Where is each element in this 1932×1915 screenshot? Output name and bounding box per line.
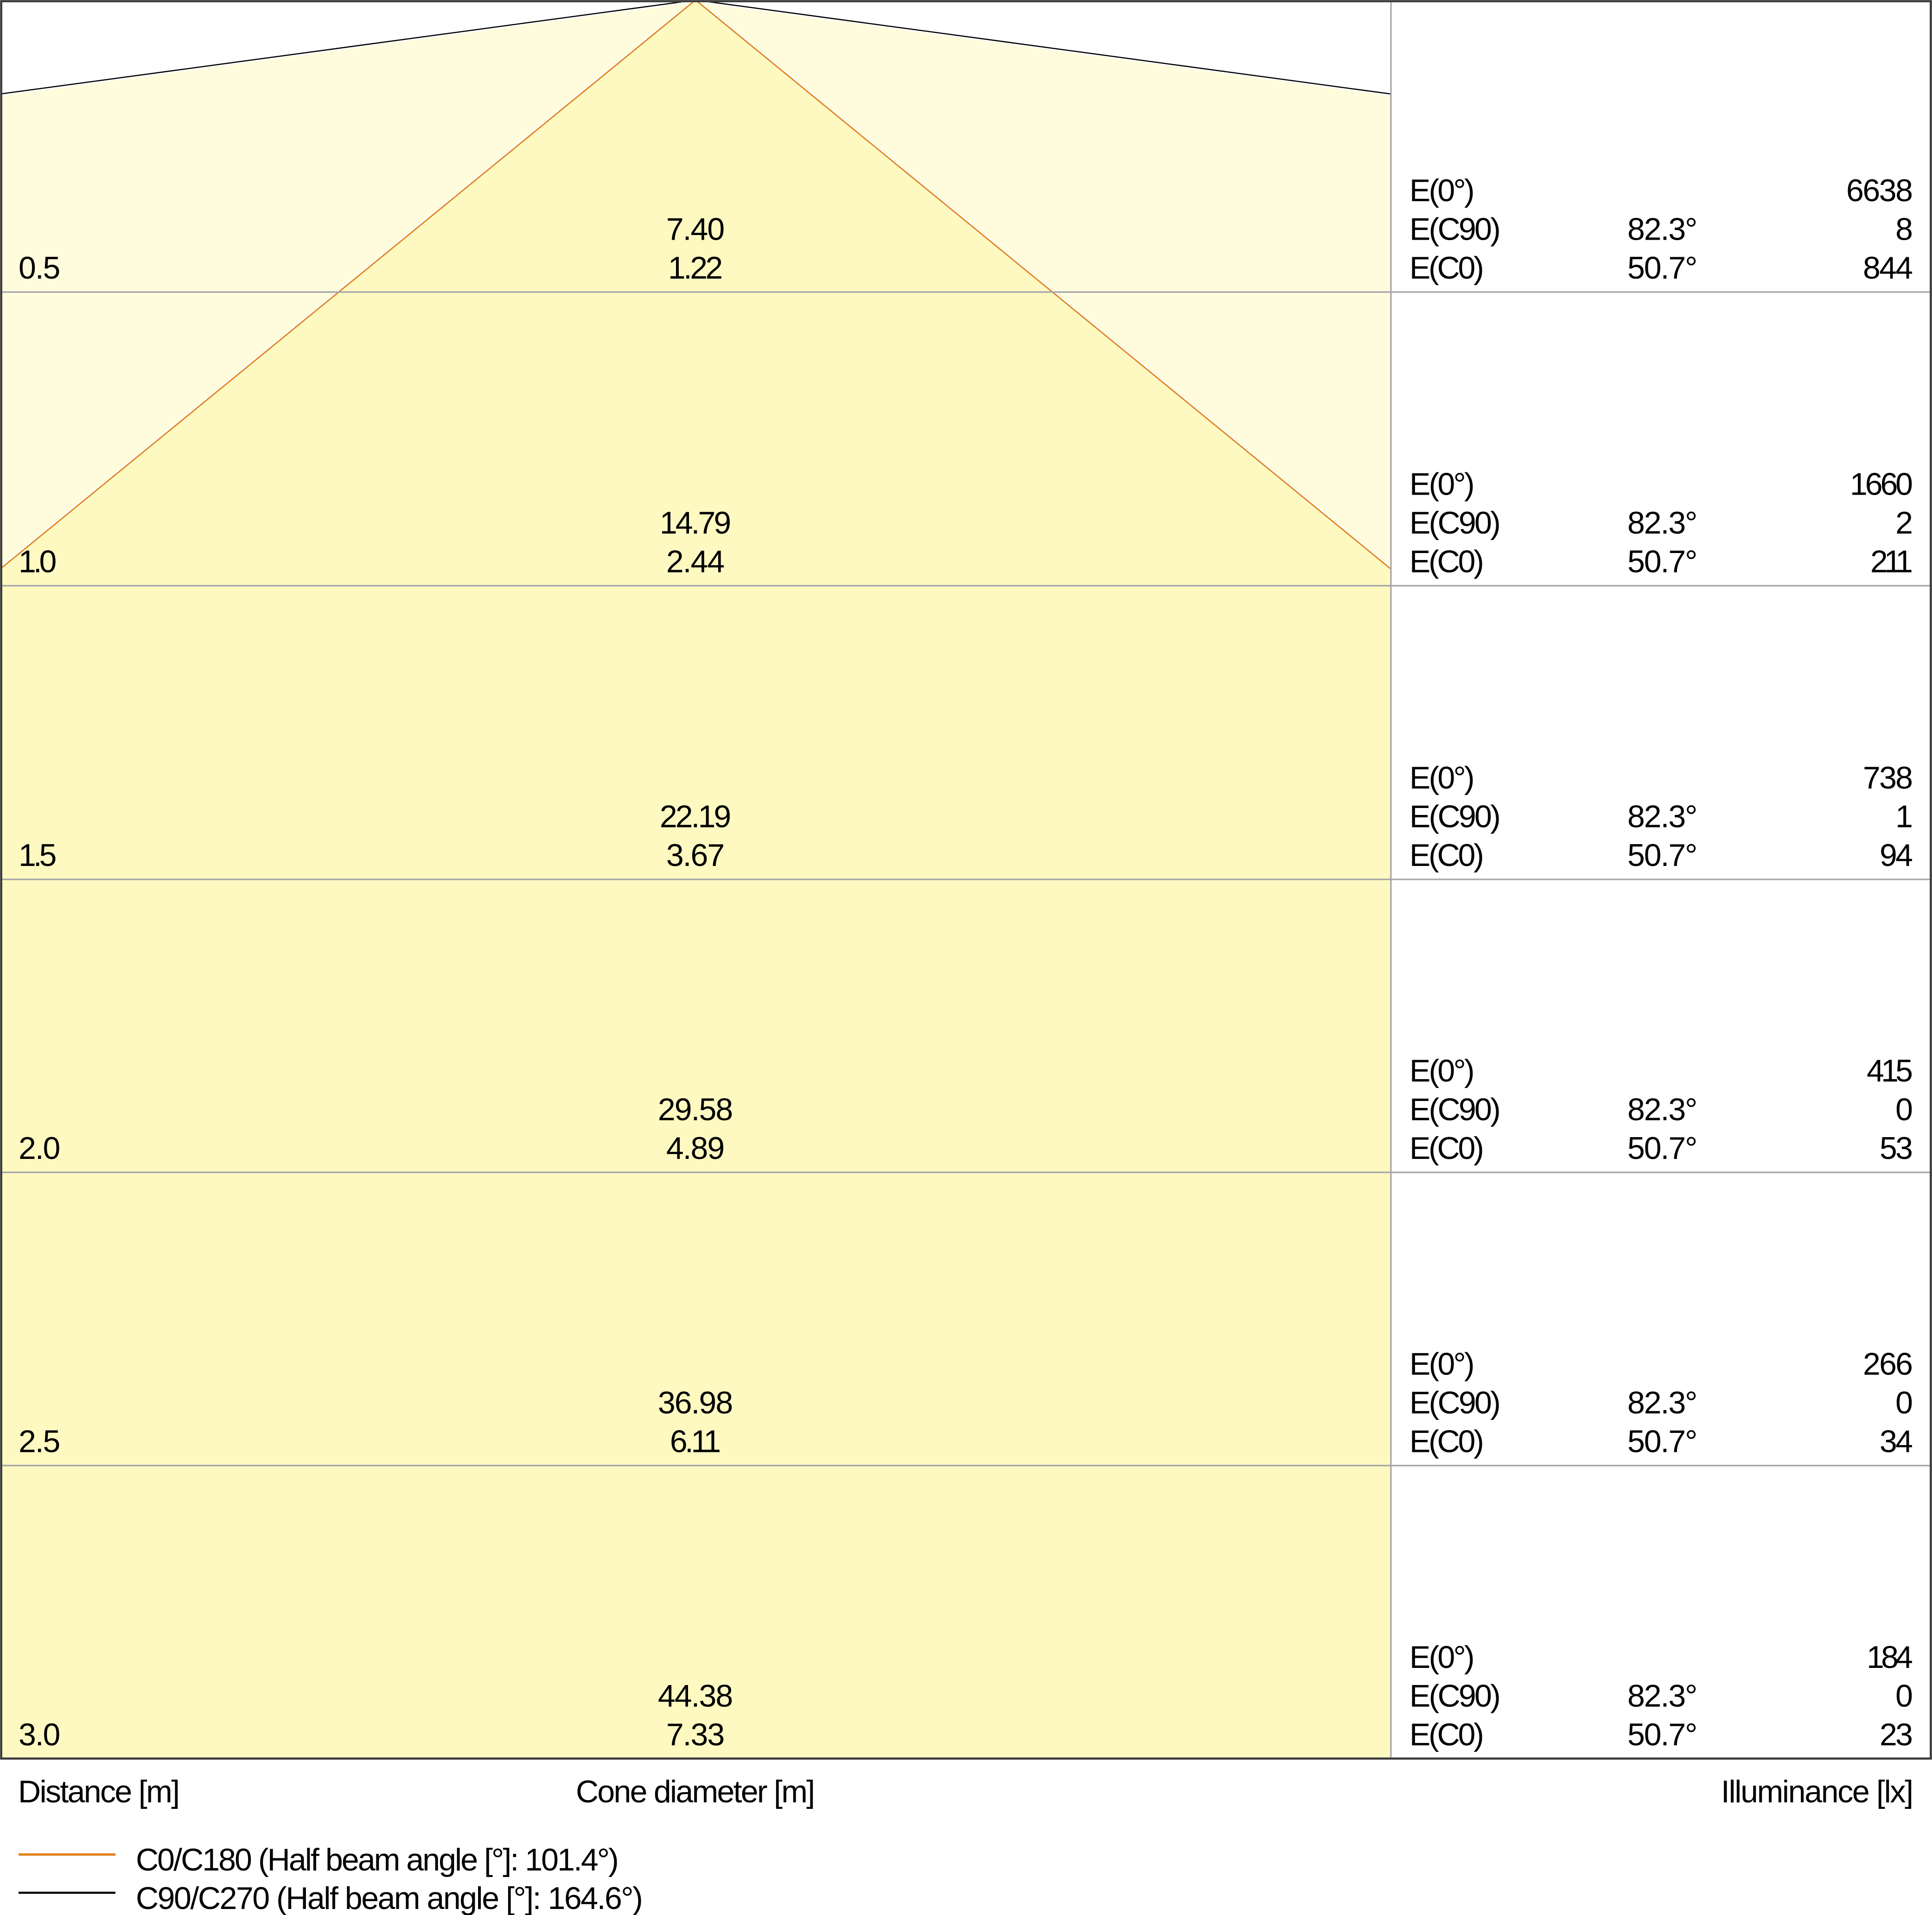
svg-text:50.7°: 50.7° — [1627, 1424, 1697, 1459]
svg-text:36.98: 36.98 — [658, 1385, 733, 1420]
svg-text:E(C0): E(C0) — [1409, 1131, 1484, 1166]
svg-text:E(0°): E(0°) — [1409, 467, 1475, 502]
svg-text:E(C0): E(C0) — [1409, 250, 1484, 286]
svg-text:E(0°): E(0°) — [1409, 1640, 1475, 1675]
svg-text:2.5: 2.5 — [19, 1424, 60, 1459]
svg-text:844: 844 — [1863, 250, 1913, 286]
svg-text:94: 94 — [1880, 838, 1913, 873]
svg-text:8: 8 — [1895, 212, 1913, 247]
svg-text:1.22: 1.22 — [668, 250, 723, 286]
svg-text:E(C90): E(C90) — [1409, 1679, 1501, 1714]
svg-text:22.19: 22.19 — [660, 799, 731, 834]
svg-text:82.3°: 82.3° — [1627, 505, 1697, 541]
svg-text:6638: 6638 — [1846, 173, 1913, 208]
svg-text:0: 0 — [1895, 1092, 1913, 1127]
svg-text:29.58: 29.58 — [658, 1092, 733, 1127]
svg-text:E(C0): E(C0) — [1409, 838, 1484, 873]
svg-text:E(C0): E(C0) — [1409, 1717, 1484, 1752]
svg-text:0: 0 — [1895, 1385, 1913, 1420]
svg-text:1: 1 — [1895, 799, 1913, 834]
svg-text:C90/C270 (Half beam angle [°]:: C90/C270 (Half beam angle [°]: 164.6°) — [136, 1881, 643, 1915]
svg-text:2.44: 2.44 — [666, 544, 725, 579]
svg-text:7.33: 7.33 — [666, 1717, 725, 1752]
svg-text:82.3°: 82.3° — [1627, 1679, 1697, 1714]
svg-text:415: 415 — [1867, 1053, 1913, 1088]
svg-text:0: 0 — [1895, 1679, 1913, 1714]
svg-text:2: 2 — [1895, 505, 1913, 541]
svg-text:82.3°: 82.3° — [1627, 1092, 1697, 1127]
svg-text:184: 184 — [1867, 1640, 1913, 1675]
svg-text:Cone diameter [m]: Cone diameter [m] — [576, 1774, 815, 1809]
svg-text:1.5: 1.5 — [19, 838, 57, 873]
svg-text:23: 23 — [1880, 1717, 1913, 1752]
svg-text:E(0°): E(0°) — [1409, 760, 1475, 795]
svg-text:3.67: 3.67 — [666, 838, 725, 873]
svg-text:E(C90): E(C90) — [1409, 212, 1501, 247]
svg-text:E(0°): E(0°) — [1409, 1347, 1475, 1382]
svg-text:0.5: 0.5 — [19, 250, 60, 286]
svg-text:E(C0): E(C0) — [1409, 1424, 1484, 1459]
svg-text:14.79: 14.79 — [660, 505, 731, 541]
svg-text:4.89: 4.89 — [666, 1131, 725, 1166]
svg-text:Illuminance [lx]: Illuminance [lx] — [1721, 1774, 1913, 1809]
svg-text:50.7°: 50.7° — [1627, 1131, 1697, 1166]
svg-text:211: 211 — [1870, 544, 1913, 579]
svg-text:E(C90): E(C90) — [1409, 505, 1501, 541]
svg-text:2.0: 2.0 — [19, 1131, 60, 1166]
svg-text:1660: 1660 — [1850, 467, 1913, 502]
svg-text:E(0°): E(0°) — [1409, 173, 1475, 208]
svg-text:82.3°: 82.3° — [1627, 212, 1697, 247]
svg-text:7.40: 7.40 — [666, 212, 725, 247]
svg-text:E(0°): E(0°) — [1409, 1053, 1475, 1088]
svg-text:6.11: 6.11 — [670, 1424, 721, 1459]
svg-text:E(C90): E(C90) — [1409, 799, 1501, 834]
svg-text:E(C90): E(C90) — [1409, 1092, 1501, 1127]
svg-text:50.7°: 50.7° — [1627, 1717, 1697, 1752]
svg-text:50.7°: 50.7° — [1627, 250, 1697, 286]
svg-text:C0/C180 (Half beam angle [°]:: C0/C180 (Half beam angle [°]: 101.4°) — [136, 1842, 619, 1877]
svg-text:44.38: 44.38 — [658, 1679, 733, 1714]
svg-text:738: 738 — [1863, 760, 1913, 795]
svg-text:E(C90): E(C90) — [1409, 1385, 1501, 1420]
svg-text:82.3°: 82.3° — [1627, 799, 1697, 834]
svg-text:34: 34 — [1880, 1424, 1913, 1459]
svg-text:50.7°: 50.7° — [1627, 838, 1697, 873]
svg-text:82.3°: 82.3° — [1627, 1385, 1697, 1420]
svg-text:Distance [m]: Distance [m] — [18, 1774, 180, 1809]
svg-text:3.0: 3.0 — [19, 1717, 60, 1752]
svg-text:E(C0): E(C0) — [1409, 544, 1484, 579]
svg-text:1.0: 1.0 — [19, 544, 57, 579]
svg-text:266: 266 — [1863, 1347, 1913, 1382]
svg-text:50.7°: 50.7° — [1627, 544, 1697, 579]
svg-text:53: 53 — [1880, 1131, 1913, 1166]
